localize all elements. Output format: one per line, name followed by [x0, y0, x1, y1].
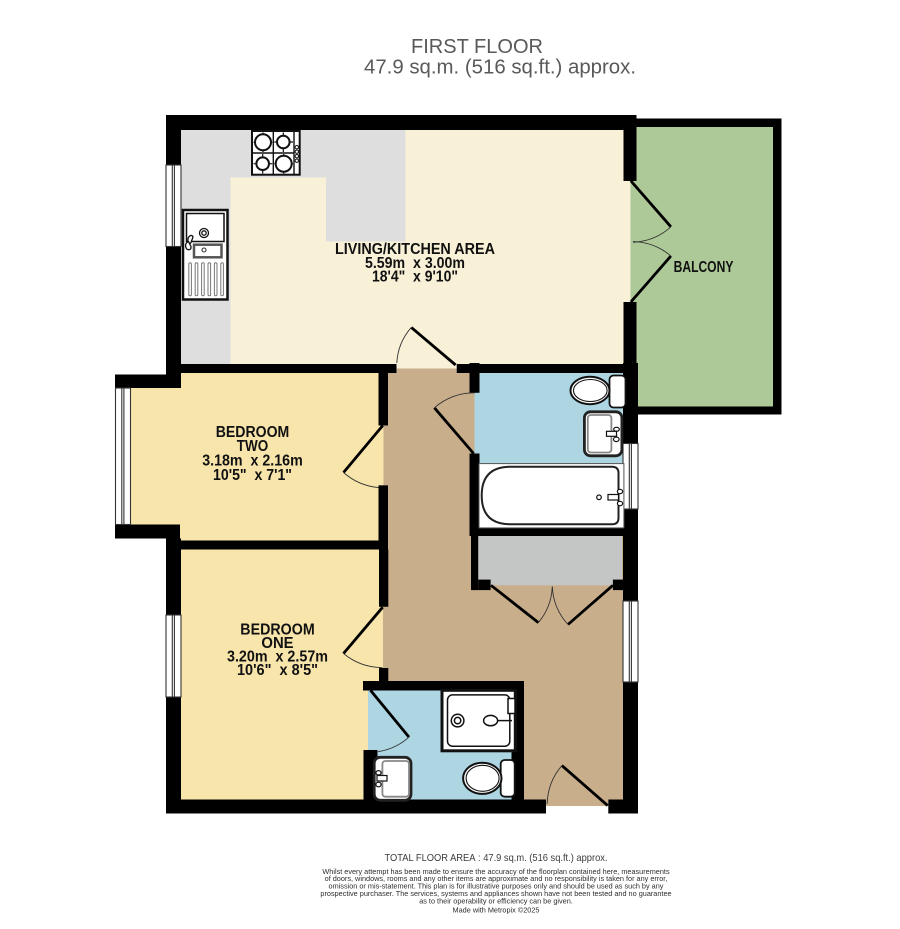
svg-text:FIRST FLOOR: FIRST FLOOR	[411, 36, 543, 58]
svg-text:Made with Metropix ©2025: Made with Metropix ©2025	[453, 906, 540, 915]
svg-text:18'4" x 9'10": 18'4" x 9'10"	[372, 269, 458, 286]
svg-text:10'5" x 7'1": 10'5" x 7'1"	[213, 467, 292, 484]
svg-text:BALCONY: BALCONY	[674, 259, 734, 276]
svg-text:10'6" x 8'5": 10'6" x 8'5"	[237, 662, 318, 679]
svg-text:as to their operability or eff: as to their operability or efficiency ca…	[419, 896, 573, 905]
svg-text:TOTAL FLOOR AREA : 47.9 sq.m.: TOTAL FLOOR AREA : 47.9 sq.m. (516 sq.ft…	[385, 853, 608, 864]
svg-text:47.9 sq.m. (516 sq.ft.) approx: 47.9 sq.m. (516 sq.ft.) approx.	[364, 57, 636, 79]
